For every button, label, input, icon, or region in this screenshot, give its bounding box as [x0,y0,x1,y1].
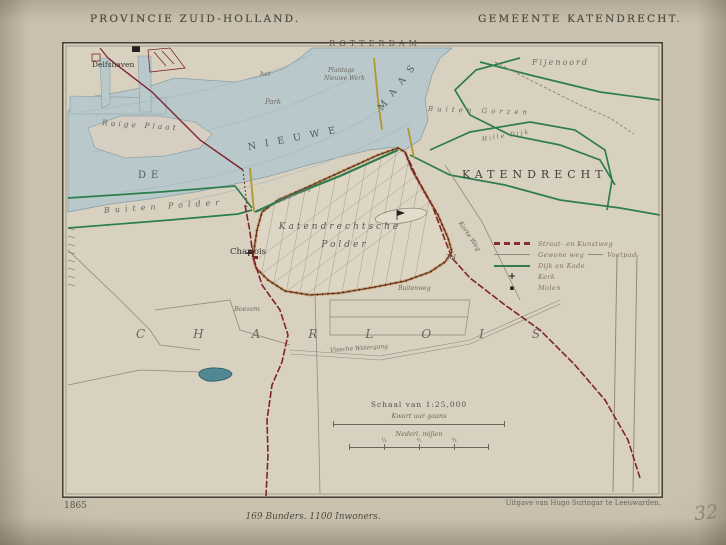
label-rotterdam: ROTTERDAM [329,39,421,48]
footpath-line-symbol [588,254,603,255]
tick-label-half: ½ [416,438,421,444]
label-de: DE [138,170,163,181]
label-katendrechtsche: Katendrechtsche [279,222,401,232]
municipality-title: GEMEENTE KATENDRECHT. [478,13,682,25]
scale-bar1-label: Kwart uur gaans [324,412,514,420]
red-dashed-road-symbol [494,242,530,245]
scale-block: Schaal van 1:25,000 Kwart uur gaans Nede… [324,400,514,450]
gray-road-symbol [494,254,530,255]
publisher-label: Uitgave van Hugo Suringar te Leeuwarden. [506,499,661,507]
map-sheet-photo: PROVINCIE ZUID-HOLLAND. GEMEENTE KATENDR… [0,0,726,545]
label-boezem: Boezem [234,305,260,313]
legend-item-kunstweg: Straat- en Kunstweg [494,238,637,249]
church-cross-icon: + [494,272,530,282]
label-delfshaven: Delfshaven [92,60,134,69]
map-frame: + ROTTERDAM Delfshaven Fijenoord het Par… [62,42,663,498]
handwritten-number: 32 [693,501,719,525]
green-dike-symbol [494,265,530,267]
scale-title: Schaal van 1:25,000 [324,400,514,409]
pond [199,368,232,381]
label-het: het [260,70,271,78]
label-plantage: Plantage [328,67,355,74]
statistics-label: 169 Bunders. 1100 Inwoners. [245,512,380,522]
label-buitenweg: Buitenweg [398,285,431,292]
legend-item-kerk: + Kerk [494,271,637,282]
mill-square-icon: ▪ [494,283,530,292]
label-tol: Tol [446,253,456,261]
label-katendrecht: KATENDRECHT [462,168,608,181]
label-park: Park [265,98,281,106]
legend-item-gewone-weg: Gewone weg Voetpad [494,249,637,260]
map-legend: Straat- en Kunstweg Gewone weg Voetpad D… [494,238,637,293]
tick-label-quarter: ¼ [381,438,386,444]
legend-item-molen: ▪ Molen [494,282,637,293]
harbor-delfshaven [70,96,166,114]
label-fijenoord: Fijenoord [532,58,589,67]
scale-bar2-label: Nederl. mijlen [324,430,514,438]
delfshaven-block [132,46,140,52]
scale-bar-1 [333,421,505,427]
shore-ticks [68,228,75,286]
scale-bar-2: ¼ ½ ¾ [349,444,489,450]
province-title: PROVINCIE ZUID-HOLLAND. [90,13,300,25]
label-charlois-village: Charlois [230,247,266,257]
tick-label-threequarter: ¾ [451,438,456,444]
legend-item-dijk: Dijk en Kade [494,260,637,271]
label-polder: Polder [321,240,368,250]
year-label: 1865 [64,501,87,511]
label-nieuwe-werk: Nieuwe Werk [324,75,365,82]
label-charlois-spread: CHARLOIS [136,327,588,341]
